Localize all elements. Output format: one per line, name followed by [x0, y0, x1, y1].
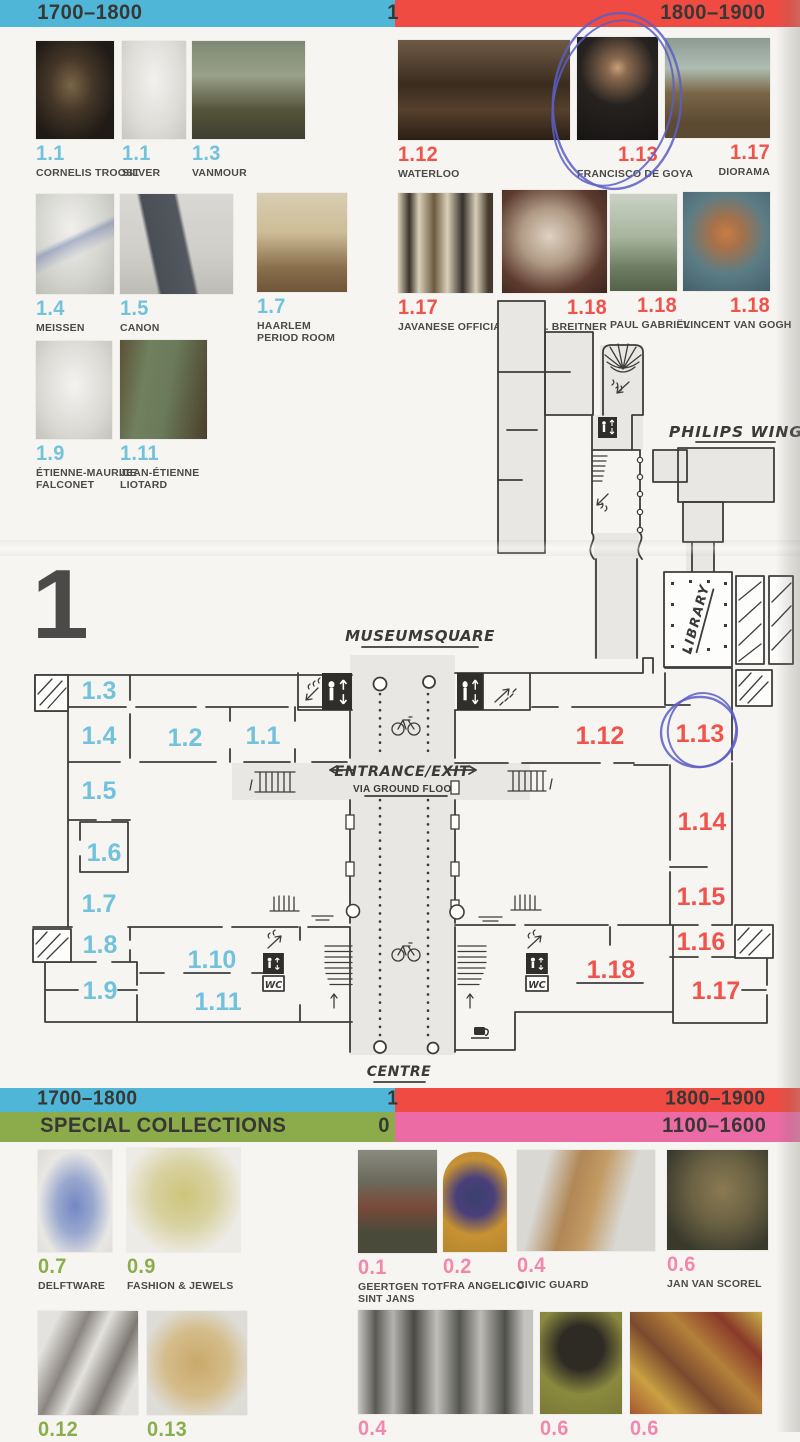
- artwork-image: [127, 1148, 240, 1252]
- stairs-icon: [306, 678, 320, 700]
- thumb-market-scene: 0.6: [630, 1312, 762, 1441]
- museumsquare-label: MUSEUMSQUARE: [345, 627, 495, 647]
- room-label-1-9: 1.9: [83, 977, 118, 1005]
- room-label-1-13: 1.13: [676, 720, 725, 748]
- artwork-image: [36, 41, 114, 139]
- room-label-1-5: 1.5: [82, 777, 117, 805]
- thumb-geertgen: 0.1 GEERTGEN TOTSINT JANS: [358, 1150, 437, 1305]
- elevator-icon: [263, 953, 284, 974]
- thumb-diorama: 1.17 DIORAMA: [665, 38, 770, 178]
- artwork-image: [122, 41, 186, 139]
- artwork-image: [577, 37, 658, 140]
- thumb-caption: WATERLOO: [398, 168, 570, 180]
- thumb-waterloo: 1.12 WATERLOO: [398, 40, 570, 180]
- thumb-fashion-jewels: 0.9 FASHION & JEWELS: [127, 1148, 240, 1292]
- thumb-number: 0.13: [147, 1418, 242, 1442]
- grand-stairs-icon: [458, 946, 486, 1008]
- thumb-caption: VANMOUR: [192, 167, 305, 179]
- thumb-number: 0.1: [358, 1256, 433, 1280]
- special-collections-bar: SPECIAL COLLECTIONS 0 1100–1600: [0, 1112, 800, 1142]
- artwork-image: [358, 1310, 533, 1414]
- room-label-1-17: 1.17: [692, 977, 741, 1005]
- artwork-image: [667, 1150, 768, 1250]
- thumb-number: 0.6: [540, 1417, 618, 1441]
- svg-text:PHILIPS WING: PHILIPS WING: [669, 423, 800, 441]
- artwork-image: [665, 38, 770, 138]
- small-stairs-icon: [511, 895, 541, 910]
- artwork-image: [610, 194, 677, 291]
- thumb-jan-van-scorel: 0.6 JAN VAN SCOREL: [667, 1150, 768, 1290]
- artwork-image: [38, 1311, 138, 1415]
- bottom-era-bar: 1700–1800 1 1800–1900: [0, 1088, 800, 1112]
- room-label-1-12: 1.12: [576, 722, 625, 750]
- thumb-delftware: 0.7 DELFTWARE: [38, 1150, 112, 1292]
- room-label-1-14: 1.14: [678, 808, 727, 836]
- thumb-civic-guard: 0.4 CIVIC GUARD: [517, 1150, 655, 1291]
- artwork-image: [398, 40, 570, 140]
- philips-wing-label: PHILIPS WING: [669, 423, 800, 442]
- era-label: 1800–1900: [665, 1088, 765, 1111]
- thumb-number: 0.6: [630, 1417, 755, 1441]
- thumb-caption: FASHION & JEWELS: [127, 1280, 240, 1292]
- stairs-icon: [592, 456, 608, 511]
- room-label-1-2: 1.2: [168, 724, 203, 752]
- museum-map-scan: { "colors":{"cyan":"#50b6d7","red":"#ef4…: [0, 0, 800, 1432]
- svg-text:CENTRE: CENTRE: [367, 1064, 431, 1080]
- thumb-vanmour: 1.3 VANMOUR: [192, 41, 305, 179]
- era-label: 1700–1800: [37, 1088, 137, 1111]
- thumb-number: 0.9: [127, 1255, 234, 1279]
- artwork-image: [398, 193, 493, 293]
- room-label-1-8: 1.8: [83, 931, 118, 959]
- elevator-icon: [526, 953, 548, 974]
- thumb-number: 0.7: [38, 1255, 108, 1279]
- era-label: 1800–1900: [661, 1, 766, 25]
- thumb-caption: CIVIC GUARD: [517, 1279, 655, 1291]
- era-label: 1100–1600: [662, 1114, 766, 1138]
- artwork-image: [120, 194, 233, 294]
- era-label: 1700–1800: [37, 1, 142, 25]
- bench-icon: [312, 916, 333, 920]
- svg-text:ENTRANCE/EXIT: ENTRANCE/EXIT: [334, 764, 470, 780]
- thumb-portrait-man: 0.6: [540, 1312, 622, 1441]
- room-label-1-16: 1.16: [677, 928, 726, 956]
- thumb-number: 0.4: [358, 1417, 524, 1441]
- artwork-image: [443, 1152, 507, 1252]
- thumb-caption: SILVER: [122, 167, 186, 179]
- thumb-mourners: 0.4: [358, 1310, 533, 1441]
- library-room: LIBRARY: [664, 572, 732, 667]
- column-circle: [450, 905, 464, 919]
- room-label-1-6: 1.6: [87, 839, 122, 867]
- artwork-image: [540, 1312, 622, 1414]
- artwork-image: [358, 1150, 437, 1253]
- top-era-bar: 1700–1800 1 1800–1900: [0, 0, 800, 27]
- era-segment-1800-1900: 1 1800–1900: [395, 1088, 800, 1112]
- artwork-image: [36, 194, 114, 294]
- thumb-pistols: 0.12: [38, 1311, 138, 1442]
- era-segment-1800-1900: 1 1800–1900: [395, 0, 800, 27]
- column-circle: [347, 905, 360, 918]
- artwork-image: [683, 192, 770, 291]
- hatched-area: [736, 576, 793, 706]
- artwork-image: [630, 1312, 762, 1414]
- grand-stairs-icon: [325, 946, 352, 1008]
- stairs-icon: [268, 930, 281, 948]
- thumb-francisco-de-goya: 1.13 FRANCISCO DE GOYA: [577, 37, 658, 180]
- room-label-1-3: 1.3: [82, 677, 117, 705]
- elevator-icon: [598, 417, 617, 438]
- thumb-silver: 1.1 SILVER: [122, 41, 186, 179]
- thumb-fra-angelico: 0.2 FRA ANGELICO: [443, 1152, 507, 1292]
- room-label-1-4: 1.4: [82, 722, 117, 750]
- thumb-number: 1.1: [36, 142, 110, 166]
- room-label-1-1: 1.1: [246, 722, 281, 750]
- floor-number-label: 0: [378, 1114, 390, 1138]
- cafe-icon: [471, 1027, 489, 1038]
- thumb-number: 0.6: [667, 1253, 763, 1277]
- thumb-number: 0.2: [443, 1255, 504, 1279]
- thumb-caption: DIORAMA: [665, 166, 770, 178]
- thumb-number: 1.13: [581, 143, 658, 167]
- artwork-image: [38, 1150, 112, 1252]
- thumb-caption: FRANCISCO DE GOYA: [577, 168, 658, 180]
- thumb-number: 1.3: [192, 142, 299, 166]
- thumb-caption: CORNELIS TROOST: [36, 167, 114, 179]
- thumb-caption: JAN VAN SCOREL: [667, 1278, 768, 1290]
- artwork-image: [257, 193, 347, 292]
- west-room-labels: 1.3 1.4 1.2 1.1 1.5 1.6 1.7 1.8 1.9 1.10…: [82, 677, 281, 1016]
- floor-number-label: 1: [387, 1088, 398, 1111]
- artwork-image: [192, 41, 305, 139]
- room-label-1-15: 1.15: [677, 883, 726, 911]
- thumb-number: 0.12: [38, 1418, 133, 1442]
- room-label-1-10: 1.10: [188, 946, 237, 974]
- small-stairs-icon: [270, 896, 299, 911]
- artwork-image: [147, 1311, 247, 1415]
- wc-icon: WC: [263, 976, 284, 991]
- thumb-caption: FRA ANGELICO: [443, 1280, 507, 1292]
- stairs-icon: [528, 930, 541, 948]
- bench-icon: [479, 917, 502, 921]
- special-collections-segment: SPECIAL COLLECTIONS 0: [0, 1112, 395, 1142]
- room-label-1-11: 1.11: [194, 988, 241, 1016]
- room-label-1-7: 1.7: [82, 890, 117, 918]
- svg-text:VIA GROUND FLOOR: VIA GROUND FLOOR: [353, 784, 460, 795]
- svg-text:MUSEUMSQUARE: MUSEUMSQUARE: [345, 627, 495, 645]
- era-segment-1700-1800: 1700–1800: [0, 1088, 395, 1112]
- section-label: SPECIAL COLLECTIONS: [40, 1114, 286, 1138]
- artwork-image: [502, 190, 607, 293]
- svg-text:WC: WC: [528, 980, 545, 991]
- stairs-up-icon: [495, 689, 516, 705]
- floor-plan-svg: PHILIPS WING LIBRARY MUSEUMSQUARE CEN: [0, 298, 800, 1088]
- thumb-number: 1.1: [122, 142, 183, 166]
- central-passage: [350, 655, 455, 1055]
- elevator-icon: [322, 673, 352, 710]
- artwork-image: [517, 1150, 655, 1251]
- svg-text:WC: WC: [265, 980, 282, 991]
- floor-number-label: 1: [387, 1, 399, 25]
- elevator-icon: [457, 673, 483, 710]
- centre-label: CENTRE: [367, 1064, 431, 1082]
- thumb-ship-model: 0.13: [147, 1311, 247, 1442]
- room-label-1-18: 1.18: [587, 956, 636, 984]
- era-segment-1100-1600: 1100–1600: [395, 1112, 800, 1142]
- thumb-cornelis-troost: 1.1 CORNELIS TROOST: [36, 41, 114, 179]
- thumb-number: 1.12: [398, 143, 561, 167]
- thumb-number: 1.17: [670, 141, 770, 165]
- wc-icon: WC: [526, 976, 548, 991]
- thumb-caption: DELFTWARE: [38, 1280, 112, 1292]
- thumb-number: 0.4: [517, 1254, 648, 1278]
- thumb-caption: GEERTGEN TOTSINT JANS: [358, 1281, 437, 1305]
- era-segment-1700-1800: 1700–1800: [0, 0, 395, 27]
